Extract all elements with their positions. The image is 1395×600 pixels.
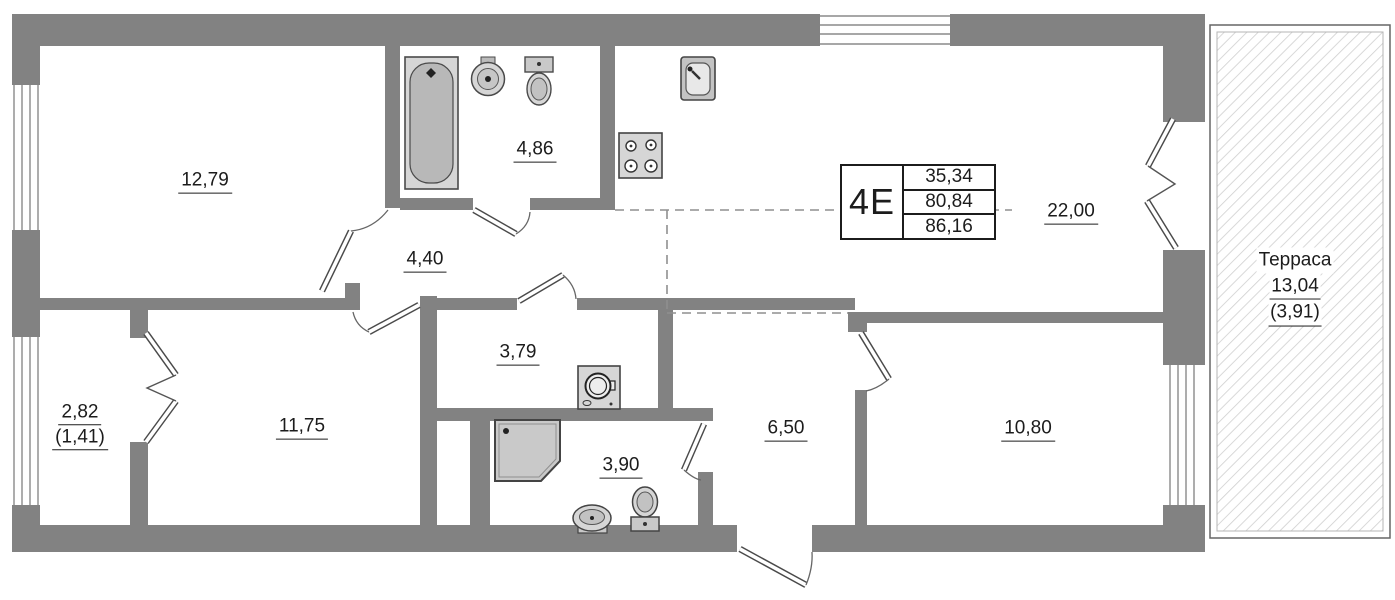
terrace-name: Терраса [1257,248,1334,274]
room-label-12-79: 12,79 [178,169,232,194]
window-left-upper [12,85,40,230]
room-label-4-86: 4,86 [514,138,557,163]
toilet-top [525,57,553,105]
bathroom2-sink [573,505,611,533]
terrace-area-reduced: (3,91) [1268,300,1322,327]
room-label-2-82: 2,82 (1,41) [52,400,108,450]
shower [495,420,560,481]
interior-walls [12,46,1163,532]
room-label-3-79: 3,79 [497,341,540,366]
room-label-22-00: 22,00 [1044,200,1098,225]
unit-info-box: 4Е 35,34 80,84 86,16 [840,164,996,240]
bathtub [405,57,458,189]
room-label-3-90: 3,90 [600,454,643,479]
floor-plan-canvas: 12,79 4,86 4,40 22,00 3,79 11,75 2,82 (1… [0,0,1395,600]
room-label-11-75: 11,75 [276,415,328,440]
bathroom-sink [472,57,505,96]
window-left-lower [12,337,40,505]
window-top [820,14,950,46]
unit-area-living: 35,34 [904,166,994,189]
kitchen-sink [681,57,715,100]
unit-area-table: 35,34 80,84 86,16 [904,166,994,238]
unit-number: 4Е [842,166,904,238]
room-label-6-50: 6,50 [765,417,808,442]
toilet-bottom [631,487,659,531]
unit-area-total: 80,84 [904,189,994,214]
unit-area-overall: 86,16 [904,213,994,238]
terrace-area: 13,04 [1269,273,1321,300]
room-label-10-80: 10,80 [1001,417,1055,442]
room-label-4-40: 4,40 [404,248,447,273]
terrace-label: Терраса 13,04 (3,91) [1257,248,1334,327]
stove [619,133,662,178]
floor-plan-drawing [0,0,1395,600]
washing-machine [578,366,620,409]
window-right [1163,365,1205,505]
